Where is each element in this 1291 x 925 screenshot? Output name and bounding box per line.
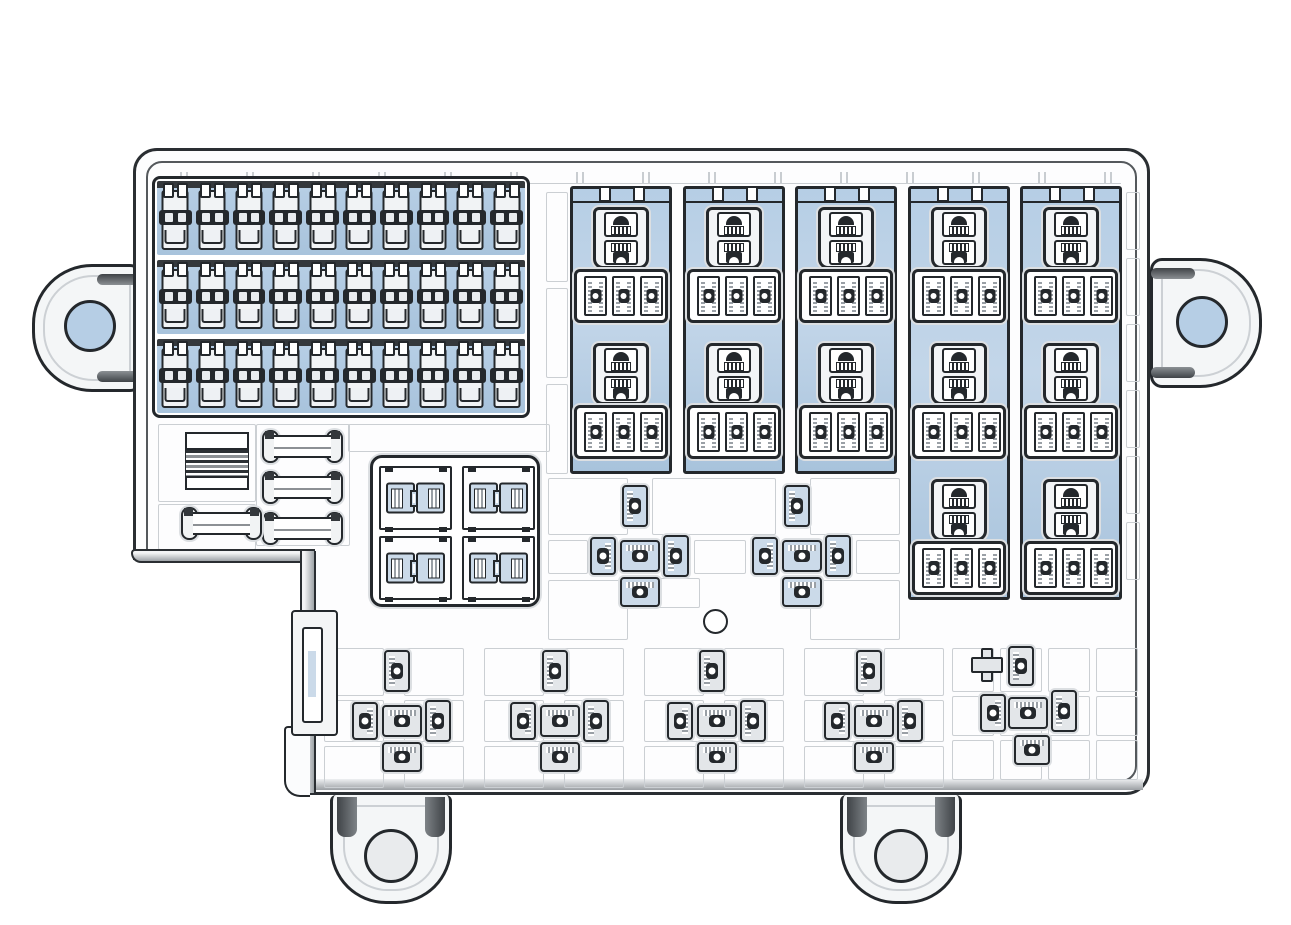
connector-tab [410, 560, 418, 577]
fuse-window [509, 292, 517, 301]
blade-terminal [950, 276, 973, 316]
relay-coil-connector [931, 479, 987, 541]
blade-terminal [809, 276, 832, 316]
fuse-prong [237, 183, 248, 198]
blade-terminal [978, 548, 1001, 588]
relay-blade-row [1024, 269, 1118, 323]
fuse-contact-band [343, 289, 376, 304]
mini-fuse [195, 346, 230, 413]
side-connector-bracket [291, 610, 338, 736]
cavity-tab [522, 527, 530, 532]
relay-blade-row [687, 405, 781, 459]
fuse-prong [311, 341, 322, 356]
header-slot [712, 188, 724, 202]
fuse-prong [274, 183, 285, 198]
relay-socket [1024, 343, 1118, 461]
coil-terminal-upper [1054, 484, 1088, 509]
holder-terminal [331, 472, 340, 480]
dome-contact [951, 488, 967, 497]
fuse-window [239, 371, 247, 380]
fuse-contact-band [233, 368, 266, 383]
notch-horizontal-wall [131, 549, 315, 563]
contact-eye [959, 565, 965, 571]
terminal-left [980, 694, 1006, 732]
fuse-channel [275, 230, 296, 244]
contact-eye [762, 293, 768, 299]
terminal-contact-glyph [984, 289, 995, 303]
fuse-channel [275, 309, 296, 323]
terminal-contact-glyph [731, 289, 742, 303]
hatch-band [428, 489, 440, 509]
mini-fuse [489, 188, 524, 255]
terminal-contact-glyph [703, 425, 714, 439]
fuse-contact-band [196, 368, 229, 383]
blade-terminal [978, 412, 1001, 452]
dome-contact [1063, 488, 1079, 497]
terminal-right [583, 700, 609, 742]
contact-eye [637, 553, 644, 560]
fuse-prong [177, 262, 188, 277]
terminal-contact-glyph [1096, 425, 1107, 439]
terminal-contact-glyph [794, 586, 810, 598]
fuse-window [239, 213, 247, 222]
fuse-prong [237, 262, 248, 277]
connector-tab [493, 560, 501, 577]
mini-fuse [342, 188, 377, 255]
jcase-connector [499, 483, 528, 514]
contact-eye [931, 429, 937, 435]
hatch-band [1061, 226, 1081, 235]
blade-terminal [865, 276, 888, 316]
fuse-channel [496, 309, 517, 323]
terminal-contact-glyph [1096, 561, 1107, 575]
hatch-band [611, 362, 631, 371]
terminal-contact-glyph [552, 715, 568, 727]
blade-terminal [753, 412, 776, 452]
relay-column [795, 186, 897, 474]
fusible-link-holder [262, 470, 343, 507]
contact-eye [1071, 429, 1077, 435]
jcase-connector [416, 483, 445, 514]
coil-terminal-lower [717, 376, 751, 401]
coil-terminal-upper [942, 348, 976, 373]
terminal-contact-glyph [1096, 289, 1107, 303]
dome-contact [1063, 352, 1079, 361]
fuse-prong [325, 341, 336, 356]
terminal-right [663, 535, 689, 577]
holder-terminal [250, 508, 259, 516]
blade-terminal [640, 412, 663, 452]
fuse-channel [422, 230, 443, 244]
contact-eye [621, 429, 627, 435]
hatch-band [611, 379, 631, 388]
fuse-contact-band [453, 368, 486, 383]
fuse-channel [349, 309, 370, 323]
fuse-row [157, 339, 525, 413]
contact-eye [871, 754, 878, 761]
jcase-connector [499, 553, 528, 584]
fuse-prong [237, 341, 248, 356]
fuse-window [349, 213, 357, 222]
terminal-right [384, 650, 410, 692]
column-header-line [686, 201, 782, 203]
cavity-tab [385, 467, 393, 472]
mini-fuse [268, 267, 303, 334]
terminal-contact-glyph [759, 289, 770, 303]
mini-fuse [342, 267, 377, 334]
hatch-band [724, 226, 744, 235]
coil-terminal-lower [604, 376, 638, 401]
terminal-contact-glyph [1020, 707, 1036, 719]
contact-eye [987, 293, 993, 299]
coil-terminal-upper [1054, 212, 1088, 237]
terminal-contact-glyph [632, 586, 648, 598]
contact-eye [734, 429, 740, 435]
contact-eye [706, 429, 712, 435]
relay-socket [799, 207, 893, 325]
contact-eye [649, 429, 655, 435]
contact-eye [1061, 708, 1068, 715]
jcase-cavity [462, 536, 535, 600]
mini-fuse [305, 188, 340, 255]
terminal-contact-glyph [863, 663, 875, 679]
fuse-channel [238, 309, 259, 323]
relay-blade-row [912, 541, 1006, 595]
contact-eye [959, 293, 965, 299]
mini-fuse [379, 346, 414, 413]
hatch-band [1061, 498, 1081, 507]
fuse-prong [398, 262, 409, 277]
terminal-right [1008, 646, 1034, 686]
cavity-tab [522, 467, 530, 472]
terminal-right [825, 535, 851, 577]
relay-socket [912, 207, 1006, 325]
terminal-contact-glyph [590, 289, 601, 303]
bracket-slot-insert [308, 651, 316, 697]
terminal-left [510, 702, 536, 740]
fuse-window [312, 292, 320, 301]
terminal-left [352, 702, 378, 740]
mini-fuse [158, 346, 193, 413]
terminal-contact-glyph [394, 715, 410, 727]
hatch-band [511, 489, 523, 509]
terminal-contact-glyph [632, 550, 648, 562]
fuse-window [435, 371, 443, 380]
terminal-left [590, 537, 616, 575]
terminal-contact-glyph [1040, 289, 1051, 303]
fuse-window [435, 213, 443, 222]
dome-contact [1063, 216, 1079, 225]
contact-eye [1071, 293, 1077, 299]
fuse-prong [288, 341, 299, 356]
fusible-link-holder [181, 506, 262, 543]
terminal-contact-glyph [987, 705, 999, 721]
fuse-contact-band [269, 368, 302, 383]
relay-socket [912, 479, 1006, 597]
relay-blade-row [799, 405, 893, 459]
blade-terminal [865, 412, 888, 452]
contact-eye [394, 668, 401, 675]
fuse-window [423, 292, 431, 301]
hatch-band [836, 362, 856, 371]
fuse-window [251, 292, 259, 301]
contact-eye [1043, 429, 1049, 435]
fusible-link-label-block [185, 432, 249, 490]
fuse-prong [472, 341, 483, 356]
blade-terminal [922, 276, 945, 316]
cavity-tab [468, 597, 476, 602]
fuse-prong [421, 262, 432, 277]
fuse-contact-band [417, 368, 450, 383]
fuse-window [472, 213, 480, 222]
mini-fuse [379, 188, 414, 255]
fuse-window [362, 213, 370, 222]
contact-eye [600, 553, 607, 560]
fuse-contact-band [380, 289, 413, 304]
mini-fuse [305, 346, 340, 413]
fuse-contact-band [233, 289, 266, 304]
fuse-prong [347, 341, 358, 356]
blade-terminal [1090, 548, 1113, 588]
contact-eye [1018, 663, 1025, 670]
fuse-prong [214, 341, 225, 356]
terminal-left [824, 702, 850, 740]
fuse-prong [509, 262, 520, 277]
fuse-contact-band [490, 289, 523, 304]
contact-eye [1029, 747, 1036, 754]
coil-terminal-lower [717, 240, 751, 265]
fuse-window [459, 371, 467, 380]
terminal-right [425, 700, 451, 742]
fuse-channel [165, 230, 186, 244]
mini-fuse [158, 188, 193, 255]
fusible-link-holder [262, 511, 343, 548]
terminal-contact-glyph [706, 663, 718, 679]
contact-eye [399, 718, 406, 725]
cavity-tab [468, 527, 476, 532]
hatch-band [724, 379, 744, 388]
fuse-contact-band [159, 210, 192, 225]
fuse-window [349, 292, 357, 301]
contact-eye [866, 668, 873, 675]
blade-terminal [584, 412, 607, 452]
fuse-prong [458, 262, 469, 277]
contact-eye [552, 668, 559, 675]
blade-terminal [1062, 276, 1085, 316]
coil-terminal-upper [942, 212, 976, 237]
terminal-right [1051, 690, 1077, 732]
fuse-channel [202, 309, 223, 323]
fuse-channel [386, 388, 407, 402]
fuse-window [288, 292, 296, 301]
fuse-contact-band [233, 210, 266, 225]
fuse-window [399, 371, 407, 380]
fuse-window [362, 371, 370, 380]
relay-coil-connector [931, 207, 987, 269]
holder-rails [274, 517, 331, 540]
terminal-down [697, 705, 737, 737]
relay-coil-connector [931, 343, 987, 405]
terminal-contact-glyph [731, 425, 742, 439]
dome-contact-down [726, 252, 742, 263]
contact-eye [632, 503, 639, 510]
terminal-down [1014, 735, 1050, 765]
cavity-tab [439, 527, 447, 532]
terminal-contact-glyph [1024, 744, 1040, 756]
fuse-window [215, 213, 223, 222]
fuse-prong [274, 262, 285, 277]
dome-contact-down [613, 252, 629, 263]
dome-contact-down [1063, 524, 1079, 535]
fuse-window [496, 292, 504, 301]
holder-rails [274, 435, 331, 458]
relay-blade-row [1024, 405, 1118, 459]
relay-blade-row [574, 405, 668, 459]
blade-terminal [950, 412, 973, 452]
terminal-contact-glyph [703, 289, 714, 303]
fuse-channel [312, 309, 333, 323]
relay-blade-row [912, 269, 1006, 323]
fuse-window [275, 213, 283, 222]
fuse-prong [251, 262, 262, 277]
fuse-contact-band [306, 289, 339, 304]
contact-eye [709, 668, 716, 675]
header-slot [824, 188, 836, 202]
fuse-contact-band [343, 210, 376, 225]
fuse-prong [361, 183, 372, 198]
contact-eye [734, 293, 740, 299]
fuse-channel [459, 388, 480, 402]
blade-terminal [1034, 276, 1057, 316]
contact-eye [557, 754, 564, 761]
coil-terminal-lower [1054, 240, 1088, 265]
fuse-prong [435, 341, 446, 356]
fuse-window [178, 292, 186, 301]
relay-column [683, 186, 785, 474]
fuse-prong [163, 262, 174, 277]
fuse-prong [347, 262, 358, 277]
fuse-window [325, 371, 333, 380]
fuse-contact-band [196, 210, 229, 225]
contact-eye [931, 293, 937, 299]
cavity-tab [468, 537, 476, 542]
relay-socket [799, 343, 893, 461]
fuse-window [202, 292, 210, 301]
hatch-band [836, 379, 856, 388]
holder-terminal [331, 513, 340, 521]
fuse-channel [238, 388, 259, 402]
mini-fuse [158, 267, 193, 334]
holder-terminal [265, 472, 274, 480]
mini-fuse [416, 267, 451, 334]
relay-blade-row [574, 269, 668, 323]
fuse-channel [496, 230, 517, 244]
contact-eye [818, 293, 824, 299]
fuse-window [165, 292, 173, 301]
contact-eye [621, 293, 627, 299]
terminal-contact-glyph [928, 561, 939, 575]
coil-terminal-lower [942, 240, 976, 265]
terminal-contact-glyph [1068, 561, 1079, 575]
terminal-contact-glyph [1068, 425, 1079, 439]
fuse-window [325, 292, 333, 301]
mini-fuse [232, 346, 267, 413]
contact-eye [1099, 429, 1105, 435]
column-header-line [911, 201, 1007, 203]
hatch-band [611, 243, 631, 252]
blade-terminal [1062, 412, 1085, 452]
fuse-prong [398, 341, 409, 356]
contact-eye [834, 718, 841, 725]
header-slot [599, 188, 611, 202]
fuse-contact-band [453, 289, 486, 304]
fuse-window [496, 371, 504, 380]
dome-contact [951, 216, 967, 225]
coil-terminal-upper [604, 212, 638, 237]
contact-eye [874, 293, 880, 299]
terminal-contact-glyph [1015, 658, 1027, 674]
terminal-contact-glyph [871, 425, 882, 439]
fuse-prong [311, 262, 322, 277]
contact-eye [714, 754, 721, 761]
contact-eye [399, 754, 406, 761]
notch-lower-lug [284, 726, 310, 797]
coil-terminal-upper [717, 348, 751, 373]
relay-blade-row [799, 269, 893, 323]
terminal-left [752, 537, 778, 575]
hatch-band [949, 226, 969, 235]
terminal-contact-glyph [871, 289, 882, 303]
contact-eye [593, 718, 600, 725]
contact-eye [762, 553, 769, 560]
fuse-window [202, 213, 210, 222]
terminal-contact-glyph [597, 548, 609, 564]
fuse-window [423, 371, 431, 380]
terminal-contact-glyph [709, 751, 725, 763]
fuse-contact-band [417, 289, 450, 304]
contact-eye [593, 429, 599, 435]
fuse-channel [165, 388, 186, 402]
contact-eye [818, 429, 824, 435]
housing-notch-cutout [96, 560, 311, 920]
coil-terminal-lower [1054, 512, 1088, 537]
terminal-contact-glyph [956, 561, 967, 575]
bracket-slot [302, 627, 323, 723]
mini-fuse [232, 267, 267, 334]
relay-coil-connector [706, 343, 762, 405]
terminal-contact-glyph [815, 289, 826, 303]
coil-terminal-lower [942, 376, 976, 401]
fuse-channel [202, 230, 223, 244]
fuse-prong [495, 262, 506, 277]
terminal-left [667, 702, 693, 740]
contact-eye [593, 293, 599, 299]
relay-socket [574, 343, 668, 461]
fuse-prong [384, 262, 395, 277]
mini-fuse [489, 267, 524, 334]
contact-eye [1071, 565, 1077, 571]
fuse-window [459, 292, 467, 301]
hatch-band [391, 559, 403, 579]
fuse-channel [349, 230, 370, 244]
coil-terminal-upper [604, 348, 638, 373]
hatch-band [724, 362, 744, 371]
relay-blade-row [687, 269, 781, 323]
relay-socket [574, 207, 668, 325]
coil-terminal-lower [604, 240, 638, 265]
fuse-prong [347, 183, 358, 198]
mini-fuse [379, 267, 414, 334]
